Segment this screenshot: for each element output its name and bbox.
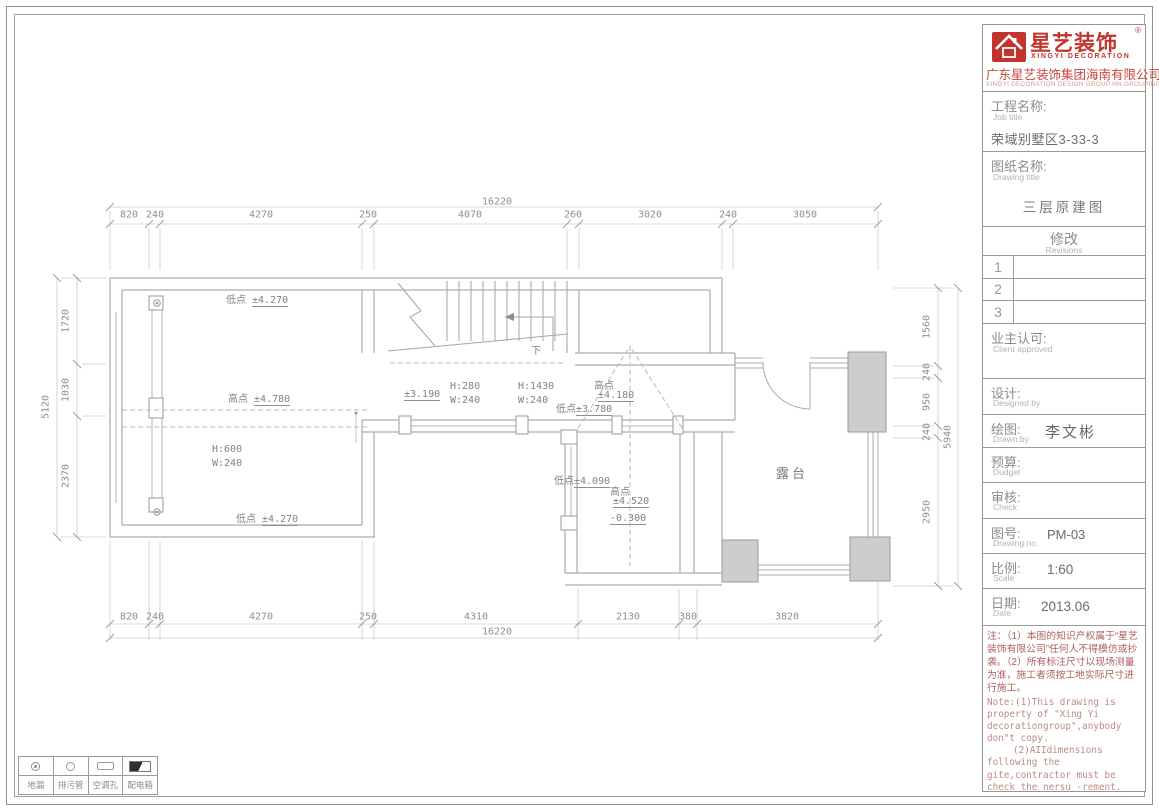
door-arc xyxy=(763,362,810,409)
dimension-label: 1030 xyxy=(61,378,72,402)
dimension-label: 240 xyxy=(719,210,737,221)
dimension-label: 4270 xyxy=(249,612,273,623)
dimension-label: 16220 xyxy=(482,197,512,208)
legend-label: 排污管 xyxy=(54,776,89,794)
revision-blank-cell xyxy=(1014,279,1145,301)
date-sublabel: Date xyxy=(993,608,1011,618)
dimension-label: 2130 xyxy=(616,612,640,623)
plan-annotation: 低点 ±4.270 xyxy=(226,291,288,306)
dimension-label: 1720 xyxy=(61,309,72,333)
job-title-sublabel: Job title xyxy=(993,112,1022,122)
floor-drain-icon xyxy=(31,762,40,771)
scale-sublabel: Scale xyxy=(993,573,1014,583)
dimension-label: 3050 xyxy=(793,210,817,221)
check-sublabel: Check xyxy=(993,502,1017,512)
dimension-label: 820 xyxy=(120,210,138,221)
drawing-title-sublabel: Drawing title xyxy=(993,172,1040,182)
plan-annotation: ±3.190 xyxy=(404,389,440,400)
title-block: 星艺装饰 ® XINGYI DECORATION 广东星艺装饰集团海南有限公司 … xyxy=(982,24,1146,792)
dimension-label: 3020 xyxy=(638,210,662,221)
dimension-label: 4310 xyxy=(464,612,488,623)
power-box-icon xyxy=(129,761,151,772)
dimension-label: 950 xyxy=(922,393,933,411)
dimension-label: 250 xyxy=(359,210,377,221)
field-drawing-no: 图号: Drawing no. PM-03 xyxy=(983,519,1145,554)
dimension-label: 260 xyxy=(564,210,582,221)
ac-hole-icon xyxy=(97,762,114,770)
field-scale: 比例: Scale 1:60 xyxy=(983,554,1145,589)
revision-blank-cell xyxy=(1014,301,1145,324)
dimension-ticks xyxy=(53,203,962,642)
ac-hole-legend-cell xyxy=(89,757,124,775)
dimension-label: 2950 xyxy=(922,500,933,524)
revision-number: 1 xyxy=(983,256,1014,278)
sewage-pipe-icon xyxy=(66,762,75,771)
dimension-label: 5940 xyxy=(943,425,954,449)
stair-treads xyxy=(388,281,568,351)
revisions-sublabel: Revisions xyxy=(983,245,1145,255)
company-name-en: XINGYI DECORATION DESIGN GROUP HN.GROUPI… xyxy=(986,81,1159,88)
floor-drain-legend-cell xyxy=(19,757,54,775)
revision-row: 2 xyxy=(983,279,1145,302)
plan-annotation: 低点±3.780 xyxy=(556,400,612,415)
dimension-label: 820 xyxy=(120,612,138,623)
field-client-approved: 业主认可: Client approved xyxy=(983,324,1145,379)
plan-annotation: W:240 xyxy=(450,395,480,406)
date-value: 2013.06 xyxy=(1041,599,1090,614)
notes-english-1: Note:(1)This drawing is property of "Xin… xyxy=(987,697,1141,745)
revision-number: 3 xyxy=(983,301,1014,324)
floor-plan-canvas xyxy=(0,0,980,811)
logo-block: 星艺装饰 ® XINGYI DECORATION 广东星艺装饰集团海南有限公司 … xyxy=(983,25,1145,92)
field-designed-by: 设计: Designed by xyxy=(983,379,1145,415)
dimension-label: 4070 xyxy=(458,210,482,221)
revisions-header: 修改 Revisions xyxy=(983,227,1145,256)
plan-annotation: 下 xyxy=(531,342,541,357)
dimension-label: 250 xyxy=(359,612,377,623)
field-drawing-title: 图纸名称: Drawing title 三层原建图 xyxy=(983,152,1145,227)
drawn-by-value: 李文彬 xyxy=(1045,421,1096,442)
plan-annotation: W:240 xyxy=(212,458,242,469)
budget-sublabel: Dudget xyxy=(993,467,1020,477)
legend-label: 配电箱 xyxy=(123,776,157,794)
revision-blank-cell xyxy=(1014,256,1145,278)
dimension-label: 3820 xyxy=(775,612,799,623)
leader-dot xyxy=(355,412,358,415)
sewage-pipe-legend-cell xyxy=(54,757,89,775)
revision-row: 1 xyxy=(983,256,1145,279)
dimension-label: 5120 xyxy=(41,395,52,419)
drawing-title-value: 三层原建图 xyxy=(983,196,1145,216)
xingyi-house-icon xyxy=(992,32,1026,62)
plan-annotation: W:240 xyxy=(518,395,548,406)
drawn-by-sublabel: Drawn by xyxy=(993,434,1029,444)
legend-icon-row xyxy=(19,757,157,775)
dimension-label: 240 xyxy=(146,612,164,623)
scale-value: 1:60 xyxy=(1047,562,1073,577)
notes-block: 注：（1）本图的知识产权属于“星艺装饰有限公司”任何人不得模仿或抄袭。（2）所有… xyxy=(983,626,1145,791)
legend-label: 地漏 xyxy=(19,776,54,794)
plan-annotation: -0.300 xyxy=(610,513,646,524)
client-approved-sublabel: Client approved xyxy=(993,344,1053,354)
plan-annotation: ±4.520 xyxy=(613,496,649,507)
registered-mark: ® xyxy=(1135,26,1141,35)
drawing-no-sublabel: Drawing no. xyxy=(993,538,1038,548)
dimension-label: 1560 xyxy=(922,315,933,339)
plan-annotation: 低点 ±4.270 xyxy=(236,510,298,525)
plan-annotation: H:600 xyxy=(212,444,242,455)
plan-annotation: 露台 xyxy=(776,463,808,482)
designed-by-sublabel: Designed by xyxy=(993,398,1040,408)
legend-label: 空调孔 xyxy=(89,776,124,794)
dimension-label: 240 xyxy=(146,210,164,221)
power-box-legend-cell xyxy=(123,757,157,775)
plan-annotation: H:1430 xyxy=(518,381,554,392)
brand-name-en: XINGYI DECORATION xyxy=(1031,53,1130,60)
legend-box: 地漏排污管空调孔配电箱 xyxy=(18,756,158,795)
field-job-title: 工程名称: Job title 荣域别墅区3-33-3 xyxy=(983,92,1145,152)
dimension-label: 240 xyxy=(922,423,933,441)
dimension-label: 380 xyxy=(679,612,697,623)
drawing-no-value: PM-03 xyxy=(1047,527,1085,542)
field-date: 日期: Date 2013.06 xyxy=(983,589,1145,626)
revision-row: 3 xyxy=(983,301,1145,324)
dimension-label: 4270 xyxy=(249,210,273,221)
field-check: 审核: Check xyxy=(983,483,1145,519)
revision-number: 2 xyxy=(983,279,1014,301)
plan-annotation: H:280 xyxy=(450,381,480,392)
wall-lines xyxy=(110,278,735,585)
field-drawn-by: 绘图: Drawn by 李文彬 xyxy=(983,415,1145,448)
stair-direction-arrow xyxy=(505,313,514,321)
revisions-rows: 123 xyxy=(983,256,1145,324)
dimension-label: 16220 xyxy=(482,627,512,638)
field-budget: 预算: Dudget xyxy=(983,448,1145,483)
dimension-label: 2370 xyxy=(61,464,72,488)
legend-label-row: 地漏排污管空调孔配电箱 xyxy=(19,775,157,794)
plan-annotation: 低点±4.090 xyxy=(554,472,610,487)
plan-annotation: 高点 ±4.780 xyxy=(228,390,290,405)
notes-chinese: 注：（1）本图的知识产权属于“星艺装饰有限公司”任何人不得模仿或抄袭。（2）所有… xyxy=(987,630,1141,695)
notes-english-2: (2)AIIdimensions following the gite,cont… xyxy=(987,745,1141,793)
job-title-value: 荣域别墅区3-33-3 xyxy=(991,129,1099,148)
dimension-label: 240 xyxy=(922,363,933,381)
